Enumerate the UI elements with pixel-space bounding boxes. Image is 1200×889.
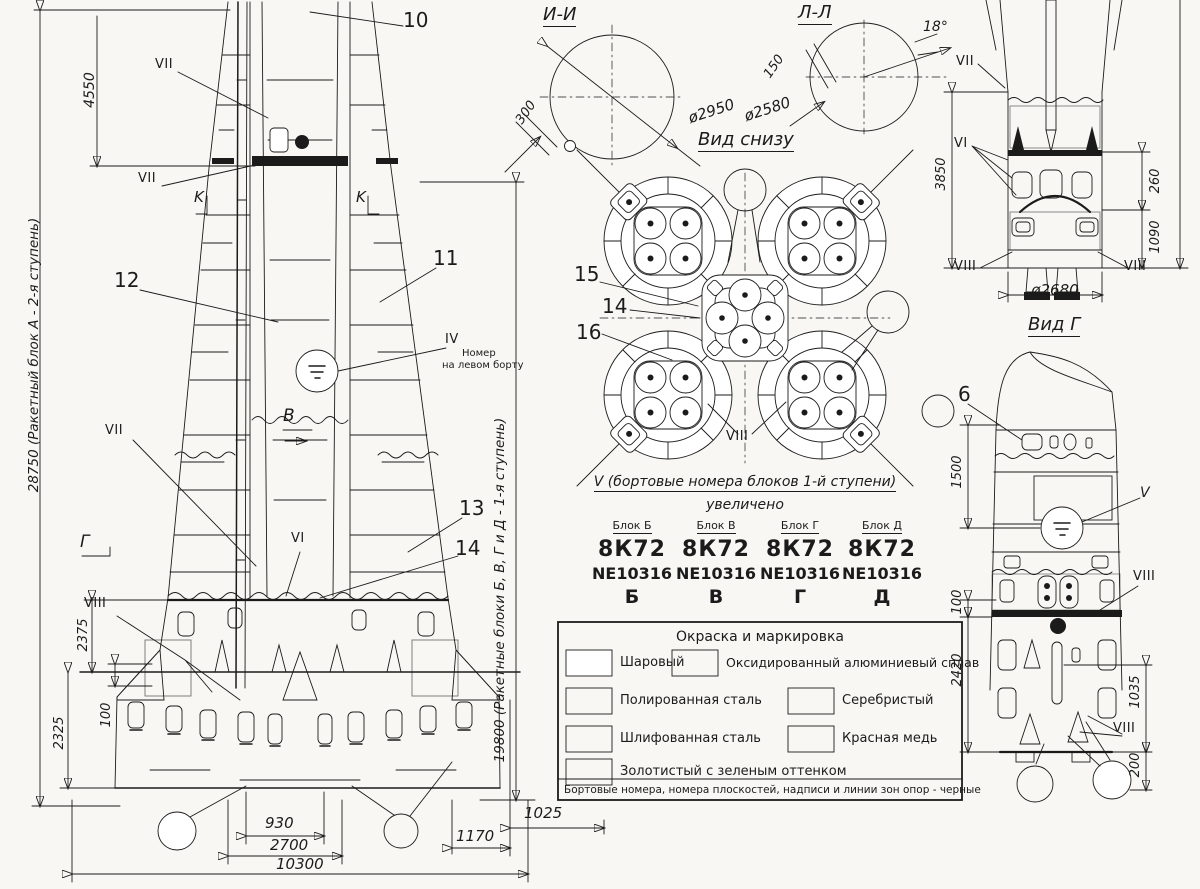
section-ii-title: И-И [543, 6, 576, 27]
view-g-dim-2420: 2420 [950, 620, 965, 720]
marker-g: Г [80, 534, 89, 552]
legend-title: Окраска и маркировка [558, 630, 962, 645]
dim-stage1-label: 19800 (Ракетные блоки Б, В, Г и Д - 1-я … [492, 375, 508, 805]
legend-item-silver: Серебристый [842, 694, 933, 708]
board-col-number: NE10316 [756, 566, 844, 583]
board-col-number: NE10316 [588, 566, 676, 583]
view-g-label-viii-bottom: VIII [1113, 722, 1135, 736]
dim-1170-label: 1170 [456, 829, 494, 845]
dim-10300-label: 10300 [276, 857, 324, 873]
board-col-header: Блок Г [760, 520, 840, 532]
legend-item-ground-steel: Шлифованная сталь [620, 732, 761, 746]
bottom-view-label-viii: VIII [726, 430, 748, 444]
label-vii-1: VII [155, 58, 173, 72]
label-vi: VI [291, 532, 305, 546]
rear-view-label-viii-left: VIII [954, 260, 976, 274]
callout-14: 14 [455, 538, 480, 559]
board-col-letter: В [676, 588, 756, 608]
callout-12: 12 [114, 270, 139, 291]
board-col-number: NE10316 [838, 566, 926, 583]
iv-note-line1: Номер [462, 349, 496, 360]
label-vii-3: VII [105, 424, 123, 438]
rear-view-dim-1090: 1090 [1148, 212, 1163, 262]
dim-1025-label: 1025 [524, 806, 562, 822]
board-col-letter: Д [842, 588, 922, 608]
legend-item-red-copper: Красная медь [842, 732, 937, 746]
rear-view-diameter: ø2680 [1010, 283, 1100, 299]
iv-note-line2: на левом борту [442, 361, 524, 372]
view-g-dim-200: 200 [1128, 742, 1143, 788]
legend-note: Бортовые номера, номера плоскостей, надп… [564, 785, 958, 796]
board-col-header-text: Блок Б [613, 519, 652, 534]
board-col-header: Блок В [676, 520, 756, 532]
board-col-letter: Г [760, 588, 840, 608]
board-numbers-caption-text: V (бортовые номера блоков 1-й ступени) [594, 474, 896, 492]
board-col-code: 8К72 [592, 538, 672, 561]
board-col-header: Блок Б [592, 520, 672, 532]
dim-930-label: 930 [265, 816, 294, 832]
section-ll-angle: 18° [923, 20, 948, 35]
bottom-view-callout-14: 14 [602, 296, 627, 317]
section-ii-drawing [505, 25, 700, 172]
dim-100-label: 100 [99, 686, 114, 744]
board-numbers-subcaption: увеличено [575, 498, 915, 513]
view-g-dim-1035: 1035 [1128, 658, 1143, 726]
view-g-label-viii-top: VIII [1133, 570, 1155, 584]
callout-13: 13 [459, 498, 484, 519]
core-block [702, 275, 788, 361]
dim-2700-label: 2700 [270, 838, 308, 854]
board-col-code: 8К72 [842, 538, 922, 561]
board-col-number: NE10316 [672, 566, 760, 583]
legend-item-white: Шаровый [620, 656, 684, 670]
blueprint-line-art [0, 0, 1200, 889]
rear-view-label-vii: VII [956, 55, 974, 69]
legend-item-polished-steel: Полированная сталь [620, 694, 762, 708]
callout-11: 11 [433, 248, 458, 269]
section-ll-title: Л-Л [798, 4, 832, 25]
board-numbers-caption: V (бортовые номера блоков 1-й ступени) [575, 475, 915, 490]
dim-total-height-label: 28750 (Ракетный блок А - 2-я ступень) [26, 60, 42, 650]
bottom-view-title: Вид снизу [698, 131, 794, 152]
marker-k-right: K [356, 190, 366, 206]
view-g-dim-1500: 1500 [950, 432, 965, 512]
rear-view-dim-3850: 3850 [934, 136, 949, 212]
bottom-view-callout-15: 15 [574, 264, 599, 285]
board-col-header-text: Блок Г [781, 519, 819, 534]
label-vii-2: VII [138, 172, 156, 186]
callout-10: 10 [403, 10, 428, 31]
dim-2375-label: 2375 [76, 602, 91, 668]
board-col-header: Блок Д [842, 520, 922, 532]
section-ll-drawing [790, 20, 950, 134]
label-iv: IV [445, 333, 459, 347]
label-viii: VIII [84, 597, 106, 611]
view-g-dim-100: 100 [950, 582, 965, 622]
legend-item-oxide: Оксидированный алюминиевый сплав [726, 656, 979, 669]
main-dimensions [32, 10, 604, 882]
bottom-view-callout-16: 16 [576, 322, 601, 343]
rear-view-label-viii-right: VIII [1124, 260, 1146, 274]
board-col-header-text: Блок В [697, 519, 736, 534]
view-g-label-v: V [1140, 486, 1150, 501]
dim-4550-label: 4550 [82, 20, 98, 160]
board-col-code: 8К72 [676, 538, 756, 561]
main-elevation-drawing [80, 2, 520, 850]
blueprint-page: 28750 (Ракетный блок А - 2-я ступень) 45… [0, 0, 1200, 889]
board-col-code: 8К72 [760, 538, 840, 561]
board-col-letter: Б [592, 588, 672, 608]
rear-view-label-vi: VI [954, 137, 968, 151]
board-col-header-text: Блок Д [862, 519, 902, 534]
view-g-callout-6: 6 [958, 384, 971, 405]
dim-2325-label: 2325 [52, 676, 67, 790]
legend-item-gold-green: Золотистый с зеленым оттенком [620, 765, 847, 779]
marker-v-arrow: В [283, 408, 295, 426]
view-g-title: Вид Г [1028, 316, 1080, 337]
marker-k-left: K [194, 190, 204, 206]
rear-view-dim-260: 260 [1148, 157, 1163, 205]
